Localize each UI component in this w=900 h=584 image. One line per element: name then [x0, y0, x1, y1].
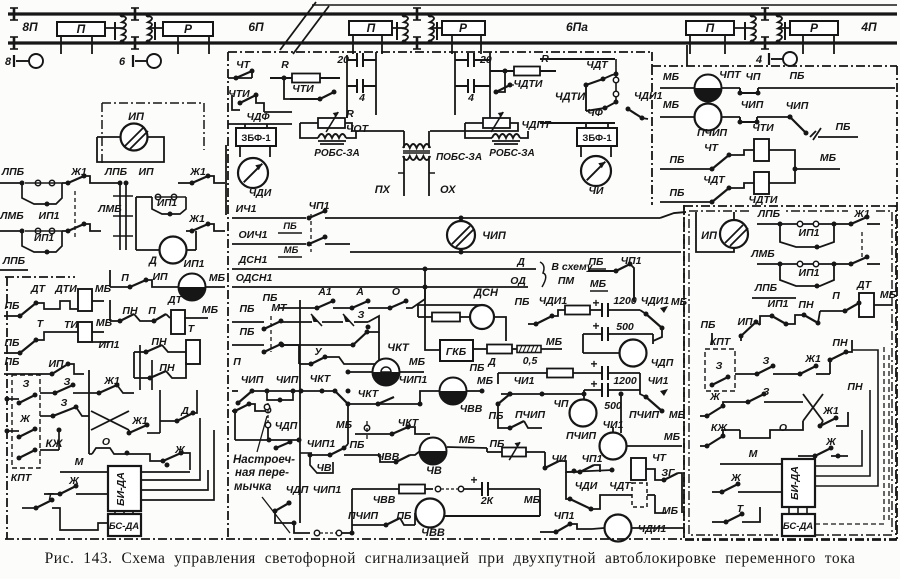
- svg-text:ПОБС-ЗА: ПОБС-ЗА: [436, 152, 482, 163]
- svg-text:ЧП1: ЧП1: [582, 453, 603, 465]
- svg-text:ЧДПТ: ЧДПТ: [522, 119, 553, 131]
- svg-text:П: П: [832, 290, 840, 302]
- svg-text:ДТИ: ДТИ: [54, 283, 77, 295]
- svg-text:ЧИП: ЧИП: [741, 99, 764, 111]
- svg-text:МБ: МБ: [546, 336, 563, 348]
- svg-text:М: М: [749, 448, 758, 460]
- svg-text:КЖ: КЖ: [46, 438, 64, 450]
- svg-text:ПБ: ПБ: [670, 187, 686, 199]
- svg-text:ИП1: ИП1: [157, 198, 177, 209]
- svg-text:В схему: В схему: [551, 261, 593, 273]
- svg-text:ЧДП: ЧДП: [651, 357, 674, 369]
- svg-text:З: З: [23, 378, 30, 390]
- svg-text:ная пере-: ная пере-: [235, 467, 289, 479]
- svg-text:П: П: [121, 272, 129, 284]
- svg-text:ИП1: ИП1: [34, 233, 54, 244]
- svg-text:ИП1: ИП1: [99, 339, 120, 351]
- svg-text:А: А: [355, 286, 364, 298]
- svg-text:МБ: МБ: [409, 356, 426, 368]
- svg-text:4: 4: [755, 54, 762, 66]
- svg-text:РОБС-ЗА: РОБС-ЗА: [314, 148, 360, 159]
- svg-text:ЗБФ-1: ЗБФ-1: [582, 133, 612, 144]
- svg-text:6Па: 6Па: [566, 20, 588, 34]
- svg-text:+: +: [470, 473, 477, 487]
- svg-text:ЧДИ: ЧДИ: [575, 480, 598, 492]
- svg-text:ГКБ: ГКБ: [446, 346, 467, 358]
- svg-text:ОД: ОД: [510, 275, 526, 287]
- svg-text:ПБ: ПБ: [240, 326, 256, 338]
- svg-text:Р: Р: [184, 22, 193, 36]
- svg-text:+: +: [592, 319, 599, 333]
- svg-text:Р: Р: [810, 21, 819, 35]
- svg-text:ЧКТ: ЧКТ: [310, 373, 332, 385]
- svg-text:ЧДТ: ЧДТ: [586, 59, 609, 71]
- svg-text:ЧИ1: ЧИ1: [648, 375, 669, 387]
- svg-text:МБ: МБ: [669, 409, 686, 421]
- svg-text:ПБ: ПБ: [670, 154, 686, 166]
- svg-text:МБ: МБ: [671, 296, 688, 308]
- svg-text:ЧИ: ЧИ: [589, 185, 604, 197]
- svg-text:ЧДТ: ЧДТ: [703, 174, 726, 186]
- svg-text:ЛПБ: ЛПБ: [2, 255, 26, 267]
- svg-text:ЧДИ: ЧДИ: [249, 187, 272, 199]
- svg-text:МБ: МБ: [202, 304, 219, 316]
- svg-text:ЧДИ1: ЧДИ1: [641, 295, 670, 307]
- svg-text:Рис. 143. Схема управления: Рис. 143. Схема управления светофорной с…: [45, 550, 856, 567]
- svg-text:ДТ: ДТ: [167, 294, 184, 306]
- svg-text:П: П: [77, 22, 86, 36]
- svg-text:ПБ: ПБ: [701, 319, 717, 331]
- svg-text:ИП1: ИП1: [184, 258, 205, 270]
- svg-text:ПБ: ПБ: [240, 303, 256, 315]
- svg-text:ДСН: ДСН: [473, 287, 499, 299]
- svg-text:ЗБФ-1: ЗБФ-1: [241, 133, 271, 144]
- svg-text:ИП1: ИП1: [799, 267, 820, 279]
- svg-text:ДТ: ДТ: [30, 283, 47, 295]
- svg-text:ПЧИП: ПЧИП: [697, 127, 728, 139]
- svg-text:ЧИП: ЧИП: [276, 374, 299, 386]
- svg-text:1200: 1200: [613, 375, 637, 387]
- svg-text:ИП1: ИП1: [768, 298, 789, 310]
- svg-text:ЧТ: ЧТ: [236, 59, 251, 71]
- svg-text:ЧИП: ЧИП: [786, 100, 809, 112]
- svg-text:ПХ: ПХ: [375, 184, 391, 196]
- svg-text:О: О: [392, 286, 400, 298]
- svg-text:ЧТИ: ЧТИ: [752, 122, 774, 134]
- svg-text:ЛМБ: ЛМБ: [97, 203, 122, 215]
- svg-text:ПБ: ПБ: [470, 362, 486, 374]
- svg-text:ИЧ1: ИЧ1: [236, 203, 257, 215]
- svg-text:ПЧИП: ПЧИП: [566, 430, 597, 442]
- svg-text:ЧДИ1: ЧДИ1: [634, 90, 663, 102]
- svg-text:R: R: [346, 108, 354, 120]
- svg-text:2К: 2К: [480, 495, 495, 507]
- svg-text:ПЧИП: ПЧИП: [629, 409, 660, 421]
- svg-text:МБ: МБ: [663, 71, 680, 83]
- svg-text:КЖ: КЖ: [711, 422, 728, 434]
- svg-text:ЧДП: ЧДП: [275, 420, 298, 432]
- svg-text:МБ: МБ: [663, 99, 680, 111]
- svg-text:Ж1: Ж1: [822, 405, 839, 417]
- svg-text:ЛПБ: ЛПБ: [1, 166, 25, 178]
- svg-text:ЧВВ: ЧВВ: [460, 403, 483, 415]
- svg-text:МБ: МБ: [284, 245, 299, 256]
- svg-text:ЛПБ: ЛПБ: [754, 282, 778, 294]
- svg-text:ИП: ИП: [152, 271, 168, 283]
- svg-text:ЛПБ: ЛПБ: [104, 166, 128, 178]
- svg-text:ЛМБ: ЛМБ: [0, 210, 24, 222]
- svg-text:ТИ: ТИ: [64, 319, 78, 331]
- svg-text:ЧПТ: ЧПТ: [719, 69, 742, 81]
- svg-text:ИП: ИП: [138, 166, 154, 178]
- svg-text:ПЧИП: ПЧИП: [348, 510, 379, 522]
- svg-text:У: У: [314, 346, 322, 358]
- svg-text:4: 4: [467, 92, 474, 104]
- svg-text:ПБ: ПБ: [5, 356, 21, 368]
- svg-text:ЧП1: ЧП1: [554, 510, 575, 522]
- svg-text:ИП1: ИП1: [799, 227, 820, 239]
- svg-text:+: +: [590, 377, 597, 391]
- svg-text:+: +: [590, 357, 597, 371]
- svg-text:КПТ: КПТ: [710, 336, 732, 348]
- svg-text:500: 500: [604, 400, 622, 412]
- svg-text:ЧИП: ЧИП: [482, 230, 507, 242]
- svg-text:Настроеч-: Настроеч-: [233, 454, 295, 466]
- svg-text:1200: 1200: [613, 295, 637, 307]
- svg-text:ЛМБ: ЛМБ: [750, 248, 775, 260]
- svg-text:ЧИ1: ЧИ1: [514, 375, 535, 387]
- svg-text:ЧДТ: ЧДТ: [609, 480, 632, 492]
- svg-text:ЧП: ЧП: [554, 398, 569, 410]
- svg-text:R: R: [281, 59, 289, 71]
- svg-text:ЧОТ: ЧОТ: [346, 123, 370, 135]
- svg-text:500: 500: [616, 321, 634, 333]
- svg-text:4П: 4П: [860, 20, 877, 34]
- svg-text:ЧВ: ЧВ: [426, 465, 442, 477]
- svg-text:ЧИП1: ЧИП1: [399, 374, 428, 386]
- svg-text:ПБ: ПБ: [489, 410, 505, 422]
- svg-text:Ж1: Ж1: [804, 353, 821, 365]
- svg-text:МБ: МБ: [880, 289, 897, 301]
- svg-text:ЛПБ: ЛПБ: [757, 208, 781, 220]
- svg-text:МБ: МБ: [209, 272, 226, 284]
- svg-text:БС-ДА: БС-ДА: [783, 521, 813, 532]
- svg-text:ДСН1: ДСН1: [238, 254, 268, 266]
- svg-text:ДТ: ДТ: [856, 279, 873, 291]
- svg-text:ЧДИ1: ЧДИ1: [638, 523, 667, 535]
- svg-text:ЧП: ЧП: [746, 71, 761, 83]
- svg-text:Д: Д: [148, 255, 157, 267]
- svg-text:ИП: ИП: [128, 111, 145, 123]
- svg-text:ЧДТИ: ЧДТИ: [555, 91, 586, 103]
- svg-text:О: О: [779, 422, 787, 434]
- svg-text:ПБ: ПБ: [790, 70, 806, 82]
- svg-text:ПН: ПН: [832, 337, 848, 349]
- svg-text:З: З: [763, 355, 770, 367]
- svg-text:БИ-ДА: БИ-ДА: [115, 472, 127, 506]
- svg-text:КПТ: КПТ: [11, 472, 33, 484]
- svg-text:МБ: МБ: [336, 419, 353, 431]
- svg-text:ПМ: ПМ: [558, 275, 575, 287]
- svg-text:ЧИП1: ЧИП1: [307, 438, 336, 450]
- svg-text:мычка: мычка: [234, 481, 272, 493]
- svg-text:ПБ: ПБ: [5, 337, 21, 349]
- svg-text:А1: А1: [317, 286, 332, 298]
- svg-text:Ж: Ж: [19, 413, 31, 425]
- svg-text:ОДСН1: ОДСН1: [236, 272, 273, 284]
- svg-text:МБ: МБ: [664, 431, 681, 443]
- svg-text:БС-ДА: БС-ДА: [109, 521, 139, 532]
- svg-text:ЧИП1: ЧИП1: [313, 484, 342, 496]
- svg-text:МБ: МБ: [820, 152, 837, 164]
- svg-text:З: З: [358, 309, 365, 321]
- svg-text:ИП1: ИП1: [39, 210, 60, 222]
- svg-text:ПЧИП: ПЧИП: [515, 409, 546, 421]
- svg-text:6П: 6П: [248, 20, 264, 34]
- svg-text:Р: Р: [459, 21, 468, 35]
- svg-text:ЧДИ1: ЧДИ1: [539, 295, 568, 307]
- svg-text:ИП: ИП: [701, 230, 718, 242]
- svg-text:МТ: МТ: [271, 302, 288, 314]
- svg-text:МБ: МБ: [590, 278, 607, 290]
- svg-text:ЧДТИ: ЧДТИ: [514, 78, 543, 90]
- svg-text:+: +: [592, 296, 599, 310]
- svg-text:Ж: Ж: [709, 391, 721, 403]
- svg-text:ПБ: ПБ: [589, 256, 605, 268]
- svg-text:БИ-ДА: БИ-ДА: [789, 466, 801, 500]
- svg-text:ПБ: ПБ: [283, 221, 297, 232]
- svg-text:ПБ: ПБ: [350, 439, 366, 451]
- svg-text:0,5: 0,5: [523, 355, 538, 367]
- svg-text:О: О: [102, 436, 110, 448]
- svg-text:ПН: ПН: [798, 299, 814, 311]
- svg-text:Ж1: Ж1: [188, 213, 205, 225]
- svg-text:8: 8: [5, 56, 12, 68]
- svg-text:ПБ: ПБ: [836, 121, 852, 133]
- svg-text:З: З: [716, 360, 723, 372]
- svg-text:Ж1: Ж1: [189, 166, 206, 178]
- svg-text:МБ: МБ: [477, 375, 494, 387]
- svg-text:М: М: [75, 456, 84, 468]
- svg-text:ПН: ПН: [847, 381, 863, 393]
- svg-text:ЧТИ: ЧТИ: [292, 83, 314, 95]
- svg-text:РОБС-ЗА: РОБС-ЗА: [489, 148, 535, 159]
- svg-text:ЧКТ: ЧКТ: [387, 342, 410, 354]
- svg-text:З: З: [61, 397, 68, 409]
- svg-text:ЧТ: ЧТ: [704, 142, 719, 154]
- svg-text:ЧВВ: ЧВВ: [373, 494, 396, 506]
- svg-text:П: П: [706, 21, 715, 35]
- svg-text:П: П: [367, 21, 376, 35]
- svg-text:ОХ: ОХ: [440, 184, 456, 196]
- svg-text:МБ: МБ: [662, 505, 679, 517]
- svg-text:П: П: [148, 305, 156, 317]
- svg-text:ЧКТ: ЧКТ: [358, 388, 380, 400]
- svg-text:П: П: [233, 356, 241, 368]
- svg-text:ЧИП: ЧИП: [241, 374, 264, 386]
- svg-text:ЧДТИ: ЧДТИ: [749, 194, 778, 206]
- svg-text:Ж: Ж: [730, 472, 742, 484]
- svg-text:МБ: МБ: [459, 434, 476, 446]
- svg-text:МБ: МБ: [95, 283, 112, 295]
- svg-text:ЧДП: ЧДП: [286, 484, 309, 496]
- svg-text:ЧТ: ЧТ: [652, 452, 667, 464]
- svg-text:Д: Д: [516, 256, 525, 268]
- svg-text:ПБ: ПБ: [5, 300, 21, 312]
- svg-text:МБ: МБ: [524, 494, 541, 506]
- svg-text:8П: 8П: [22, 20, 38, 34]
- svg-text:ОИЧ1: ОИЧ1: [239, 229, 268, 241]
- svg-text:6: 6: [119, 56, 126, 68]
- svg-text:ЧВВ: ЧВВ: [421, 527, 445, 539]
- svg-text:ПБ: ПБ: [515, 296, 531, 308]
- svg-text:ПБ: ПБ: [397, 510, 413, 522]
- svg-text:Д: Д: [487, 356, 496, 368]
- svg-text:4: 4: [358, 92, 365, 104]
